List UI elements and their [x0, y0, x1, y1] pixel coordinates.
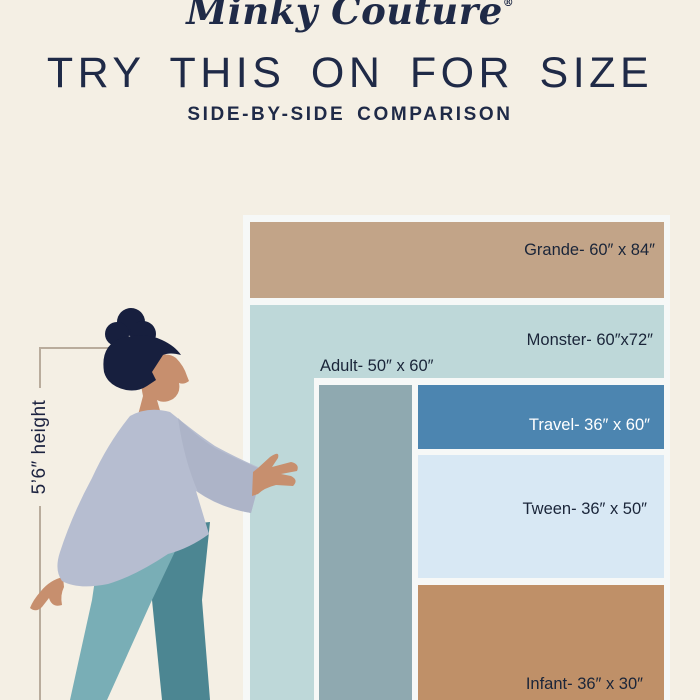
brand-logo-text: Minky Couture	[186, 0, 502, 33]
person-illustration	[0, 300, 300, 700]
size-rect-adult	[319, 385, 412, 700]
page-subtitle: SIDE-BY-SIDE COMPARISON	[0, 104, 700, 126]
size-label-infant: Infant- 36″ x 30″	[526, 675, 643, 694]
size-label-adult: Adult- 50″ x 60″	[320, 357, 434, 376]
size-label-tween: Tween- 36″ x 50″	[523, 500, 648, 519]
size-label-travel: Travel- 36″ x 60″	[529, 416, 650, 435]
person-front-hand	[252, 454, 298, 496]
size-rect-grande	[250, 222, 664, 298]
registered-trademark-symbol: ®	[503, 0, 514, 9]
person-back-hand	[30, 577, 64, 610]
size-label-grande: Grande- 60″ x 84″	[524, 241, 655, 260]
size-label-monster: Monster- 60″x72″	[527, 331, 653, 350]
page-title: TRY THIS ON FOR SIZE	[0, 49, 700, 98]
brand-logo: Minky Couture®	[0, 0, 700, 33]
